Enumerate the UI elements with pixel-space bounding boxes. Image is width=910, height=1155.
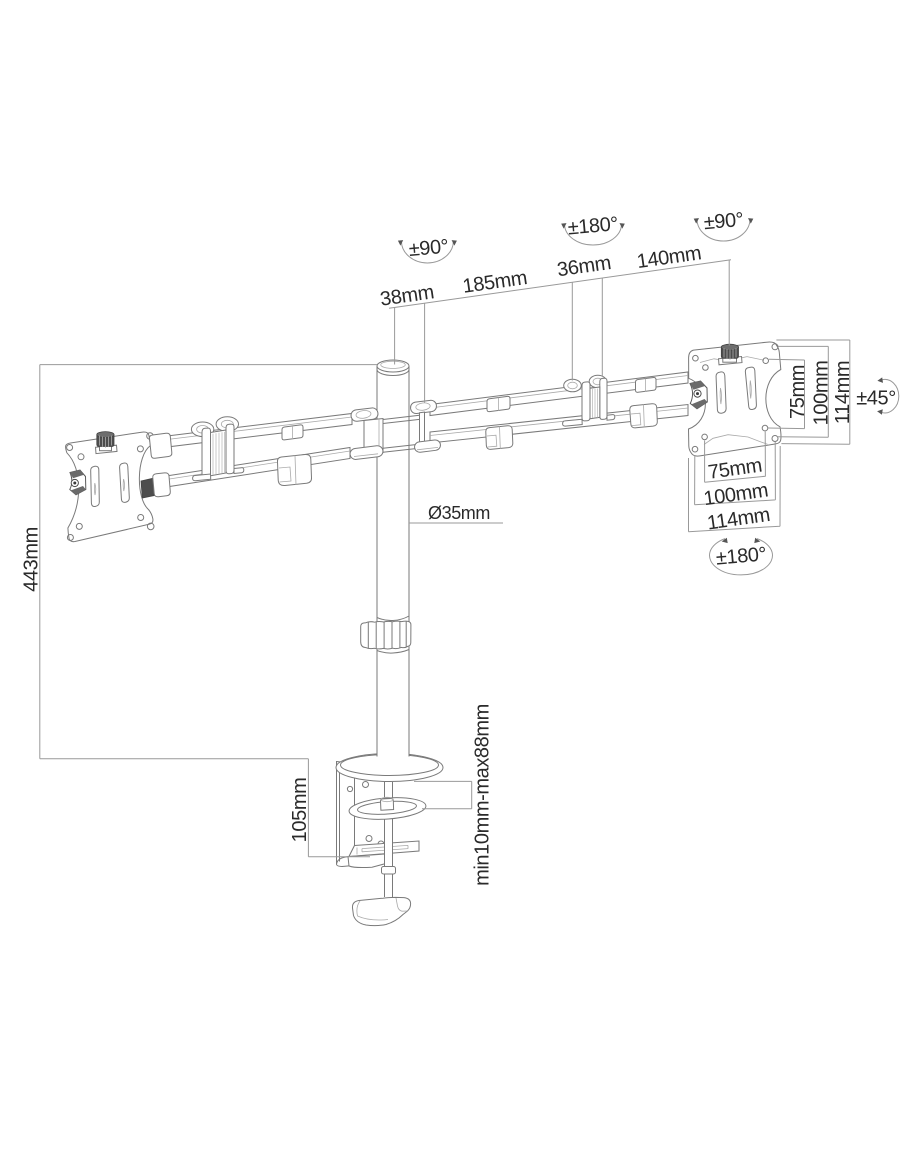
svg-text:114mm: 114mm [832, 361, 854, 424]
svg-text:±90°: ±90° [703, 209, 744, 234]
svg-text:443mm: 443mm [21, 527, 43, 592]
svg-text:100mm: 100mm [811, 361, 833, 426]
svg-text:Ø35mm: Ø35mm [428, 503, 490, 523]
svg-text:±180°: ±180° [715, 543, 767, 569]
svg-text:min10mm-max88mm: min10mm-max88mm [472, 704, 494, 886]
svg-text:105mm: 105mm [289, 778, 311, 843]
svg-text:75mm: 75mm [787, 365, 809, 419]
svg-text:±45°: ±45° [856, 387, 896, 409]
svg-text:±90°: ±90° [408, 236, 449, 261]
svg-text:±180°: ±180° [567, 213, 619, 239]
